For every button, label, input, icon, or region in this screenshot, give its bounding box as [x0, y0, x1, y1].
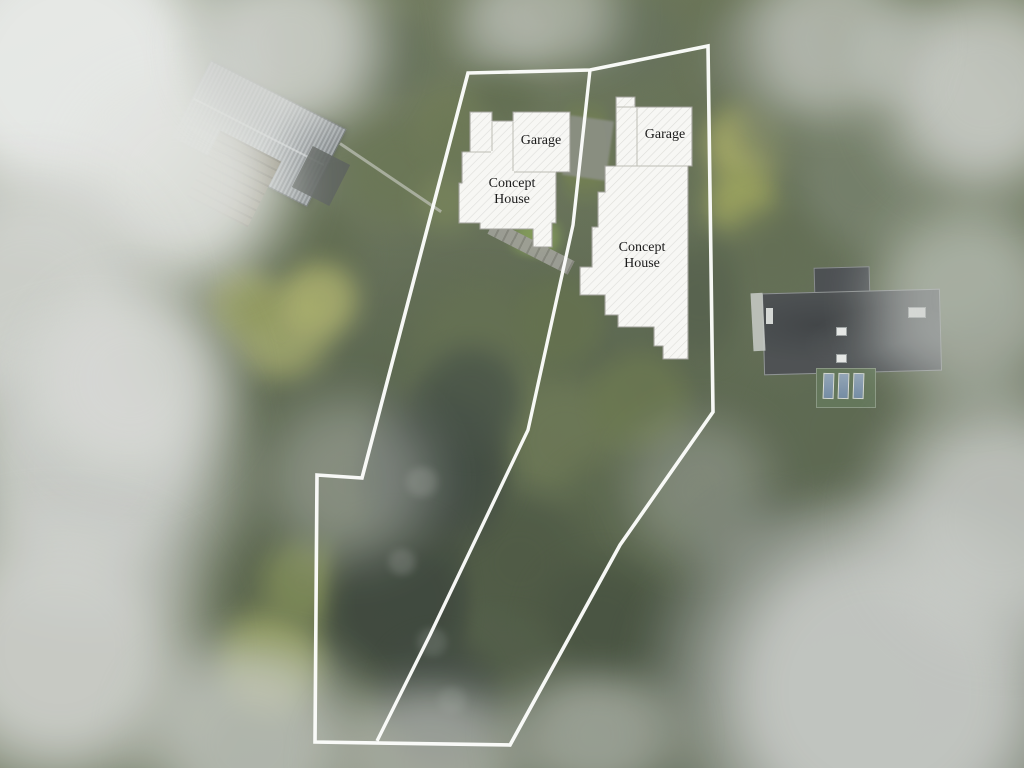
- west-house-label: Concept House: [481, 176, 543, 208]
- east-house-label: Concept House: [611, 240, 673, 272]
- aerial-site-photo: Garage Concept House Garage Concept Hous…: [0, 0, 1024, 768]
- east-garage-label: Garage: [645, 127, 685, 143]
- west-garage-label: Garage: [521, 133, 561, 149]
- site-plan-overlay: [0, 0, 1024, 768]
